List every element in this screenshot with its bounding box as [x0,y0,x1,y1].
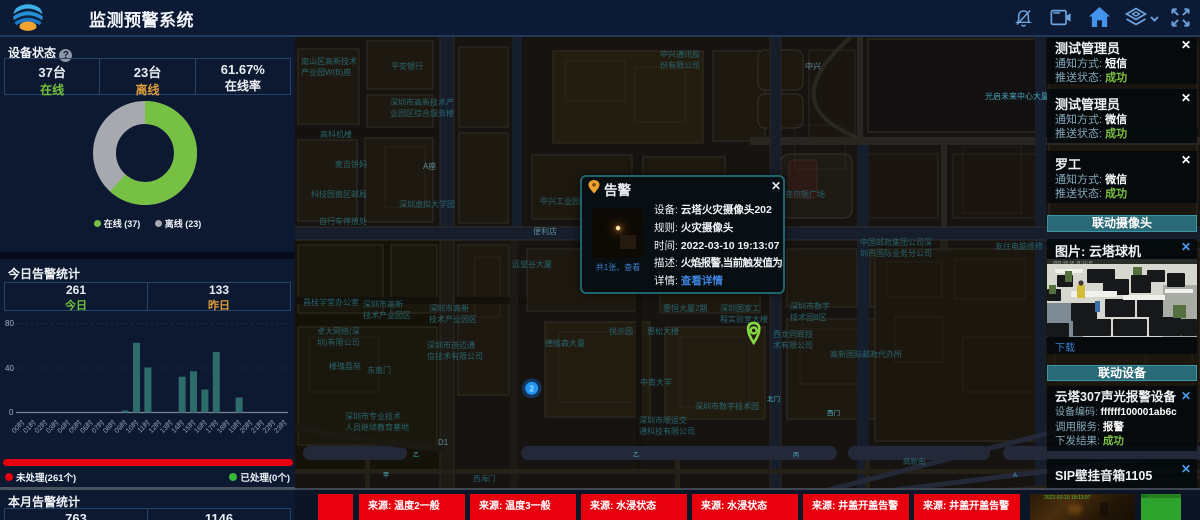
svg-text:高新南: 高新南 [903,456,926,466]
svg-text:深圳市高新技术产: 深圳市高新技术产 [390,97,454,107]
svg-text:便利店: 便利店 [533,226,557,236]
svg-text:乙: 乙 [633,452,639,459]
svg-text:查尔顿广场: 查尔顿广场 [785,189,825,199]
svg-text:份有限公司: 份有限公司 [660,60,700,70]
svg-text:麦吉饼妈: 麦吉饼妈 [335,159,367,169]
svg-text:西门: 西门 [827,408,840,417]
svg-text:卓大网络(深: 卓大网络(深 [317,326,360,336]
svg-text:深圳市顺运交: 深圳市顺运交 [639,415,687,425]
svg-text:高科机楼: 高科机楼 [320,129,352,139]
svg-text:深圳市数字: 深圳市数字 [790,301,830,311]
svg-text:深圳市专业技术: 深圳市专业技术 [345,411,401,421]
svg-text:科技园南区邮局: 科技园南区邮局 [311,189,367,199]
svg-text:40: 40 [5,364,14,373]
svg-text:深圳国家工: 深圳国家工 [720,303,760,313]
svg-text:A: A [1013,473,1017,479]
svg-text:中国邮政集团公司深: 中国邮政集团公司深 [860,237,932,247]
svg-text:友住电脑维修: 友住电脑维修 [995,241,1043,251]
svg-text:产业园W(B)座: 产业园W(B)座 [301,67,351,77]
svg-text:中兴: 中兴 [805,61,821,71]
svg-text:南山区高新技术: 南山区高新技术 [301,56,357,66]
svg-text:2: 2 [529,384,534,393]
svg-text:中兴通讯股: 中兴通讯股 [660,49,700,59]
svg-text:北门: 北门 [767,394,780,403]
svg-text:德维森大厦: 德维森大厦 [545,338,585,348]
svg-text:程实验室大楼: 程实验室大楼 [720,314,768,324]
svg-text:悦示园: 悦示园 [609,326,633,336]
svg-text:深圳虚拟大学园: 深圳虚拟大学园 [399,199,455,209]
svg-text:D1: D1 [438,438,449,447]
svg-text:信技术有限公司: 信技术有限公司 [427,351,483,361]
svg-text:东南门: 东南门 [367,365,391,375]
svg-text:技术产业园区: 技术产业园区 [429,314,477,324]
svg-text:深圳市高新: 深圳市高新 [363,299,403,309]
svg-text:技术产业园区: 技术产业园区 [363,310,411,320]
svg-text:深圳市高新: 深圳市高新 [429,303,469,313]
svg-text:圳)有限公司: 圳)有限公司 [317,337,360,347]
svg-text:人员继续教育基地: 人员继续教育基地 [345,422,409,432]
svg-text:通科技有限公司: 通科技有限公司 [639,426,695,436]
svg-text:业园区综合服务楼: 业园区综合服务楼 [390,108,454,118]
svg-text:高新国际邮政代办所: 高新国际邮政代办所 [830,349,902,359]
svg-text:西龙同辉技: 西龙同辉技 [773,329,813,339]
svg-text:深圳市数字技术园: 深圳市数字技术园 [695,401,759,411]
svg-text:中兴工业园: 中兴工业园 [540,196,580,206]
svg-text:平安银行: 平安银行 [391,61,423,71]
svg-text:惠松大楼: 惠松大楼 [647,326,679,336]
svg-text:昌桂学堂办公室: 昌桂学堂办公室 [303,297,359,307]
svg-text:光启未来中心大厦: 光启未来中心大厦 [985,91,1049,101]
svg-text:深圳市迪迈通: 深圳市迪迈通 [427,340,475,350]
svg-text:术有限公司: 术有限公司 [773,340,813,350]
svg-text:80: 80 [5,319,14,328]
svg-text:甲: 甲 [383,472,389,479]
svg-text:西海门: 西海门 [473,473,496,483]
svg-text:圳市国际业务分公司: 圳市国际业务分公司 [860,248,932,258]
svg-text:技术园8区: 技术园8区 [790,312,826,322]
svg-text:2022-03-10 19:13:07: 2022-03-10 19:13:07 [1053,262,1093,266]
svg-text:楼瑰荔苑: 楼瑰荔苑 [329,361,361,371]
svg-text:自行车停放处: 自行车停放处 [319,216,367,226]
svg-text:中南大学: 中南大学 [640,377,672,387]
svg-text:远望谷大厦: 远望谷大厦 [512,259,552,269]
svg-text:A座: A座 [423,161,436,171]
svg-text:惠恒大厦2期: 惠恒大厦2期 [663,303,707,313]
svg-text:乙: 乙 [413,452,419,459]
svg-text:丙: 丙 [793,452,799,459]
svg-text:0: 0 [9,408,14,417]
